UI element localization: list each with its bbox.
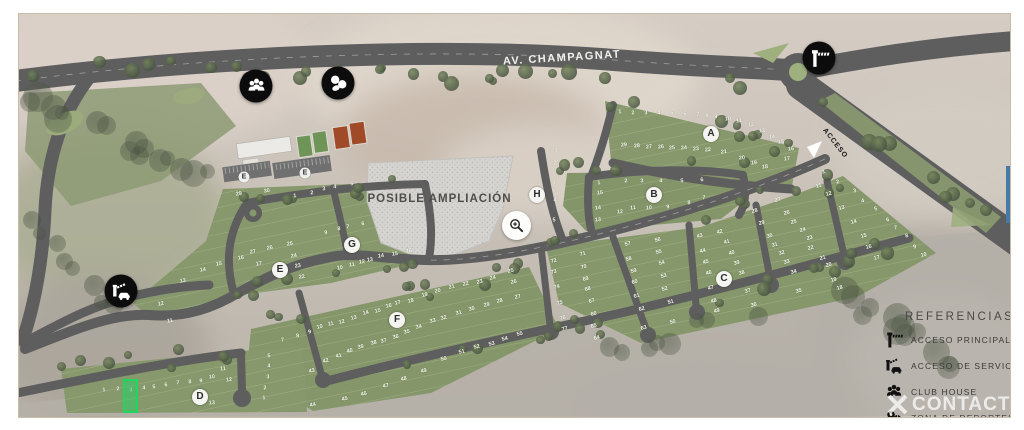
highlighted-lot[interactable] xyxy=(123,379,138,413)
tree xyxy=(231,61,241,71)
lot-number: 9 xyxy=(666,205,669,211)
legend-item-label: ACCESO PRINCIPAL xyxy=(911,335,1011,345)
lot-number: 16 xyxy=(788,147,794,153)
tree xyxy=(769,146,780,157)
tree xyxy=(166,56,176,66)
tree xyxy=(965,198,975,208)
tree xyxy=(75,355,86,366)
lot-number: 1 xyxy=(262,396,265,402)
tree xyxy=(599,72,610,83)
tree xyxy=(550,236,559,245)
tree xyxy=(248,290,259,301)
tree xyxy=(86,111,109,134)
lot-number: 18 xyxy=(762,165,768,171)
lot-number: 5 xyxy=(552,218,555,224)
lot-number: 10 xyxy=(725,117,731,123)
lot-number: 17 xyxy=(256,262,263,268)
lot-number: 10 xyxy=(209,375,215,381)
tree xyxy=(606,102,615,111)
tree xyxy=(980,204,992,216)
lot-number: 2 xyxy=(624,179,627,185)
tree xyxy=(20,92,39,111)
tree xyxy=(402,282,410,290)
tree xyxy=(57,362,66,371)
lot-number: 28 xyxy=(634,144,640,150)
section-badge-a: A xyxy=(703,126,719,142)
lot-number: 15 xyxy=(392,252,399,258)
lot-number: 2 xyxy=(310,191,314,197)
lot-number: 11 xyxy=(167,319,174,325)
lot-number: 11 xyxy=(220,367,226,373)
lot-number: 13 xyxy=(759,129,765,135)
tree xyxy=(687,156,697,166)
lot-number: 13 xyxy=(209,401,215,407)
tree xyxy=(65,261,80,276)
lot-number: 3 xyxy=(322,187,326,193)
tree xyxy=(49,235,66,252)
parking-marker: E xyxy=(300,168,311,179)
tree xyxy=(485,74,493,82)
zoom-in-button[interactable] xyxy=(502,211,531,240)
tree xyxy=(125,131,147,153)
lot-number: 15 xyxy=(597,191,603,197)
tree xyxy=(548,69,557,78)
lot-number: 9 xyxy=(324,231,328,237)
tree xyxy=(733,81,747,95)
tree xyxy=(725,73,735,83)
tree xyxy=(791,186,801,196)
legend-item-acceso-de-servicio: ACCESO DE SERVICIO xyxy=(885,357,1011,375)
legend-item-acceso-principal: ACCESO PRINCIPAL xyxy=(885,331,1011,349)
lot-number: 1 xyxy=(618,110,621,116)
tree xyxy=(444,76,459,91)
lot-number: 23 xyxy=(295,264,302,270)
tree xyxy=(399,262,409,272)
service-access-marker xyxy=(105,275,138,308)
lot-number: 8 xyxy=(687,201,690,207)
tree xyxy=(927,171,940,184)
lot-number: 3 xyxy=(266,375,269,381)
lot-number: 4 xyxy=(142,386,145,392)
lot-number: 11 xyxy=(328,322,335,329)
legend-title: REFERENCIAS xyxy=(905,311,1011,323)
tree xyxy=(559,159,571,171)
lot-number: 15 xyxy=(778,140,784,146)
tree xyxy=(233,291,241,299)
magnifier-icon xyxy=(508,217,525,234)
lot-number: 2 xyxy=(263,386,266,392)
tree xyxy=(939,191,951,203)
tree xyxy=(296,314,306,324)
tree xyxy=(252,276,263,287)
lot-number: 27 xyxy=(250,250,257,256)
lot-number: 8 xyxy=(188,380,191,386)
lot-number: 6 xyxy=(683,112,686,118)
lot-number: 6 xyxy=(700,178,703,184)
tree xyxy=(103,357,115,369)
tree xyxy=(124,351,132,359)
section-badge-d: D xyxy=(192,389,208,405)
lot-number: 19 xyxy=(751,161,757,167)
lot-number: 29 xyxy=(621,143,627,149)
lot-number: 7 xyxy=(696,113,699,119)
lot-number: 4 xyxy=(267,364,270,370)
tree xyxy=(55,106,69,120)
lot-number: 16 xyxy=(406,249,413,255)
tree xyxy=(734,131,745,142)
lot-number: 25 xyxy=(287,242,294,248)
barrier-icon xyxy=(809,48,829,68)
section-badge-e: E xyxy=(272,262,288,278)
barrier-car-icon xyxy=(885,357,903,375)
main-access-marker xyxy=(803,42,836,75)
tree xyxy=(205,62,217,74)
lot-number: 21 xyxy=(721,150,727,156)
tree xyxy=(256,194,265,203)
lot-number: 24 xyxy=(681,146,687,152)
lot-number: 11 xyxy=(349,263,355,269)
tree xyxy=(33,227,46,240)
tree xyxy=(600,337,620,357)
tree xyxy=(749,307,768,326)
tree xyxy=(757,282,771,296)
tree xyxy=(142,58,155,71)
lot-number: 12 xyxy=(359,260,366,266)
section-badge-h: H xyxy=(529,187,545,203)
tree xyxy=(420,279,430,289)
tree xyxy=(125,63,140,78)
tree xyxy=(846,248,857,259)
lot-number: 10 xyxy=(646,206,652,212)
tree xyxy=(407,259,418,270)
tree xyxy=(649,335,665,351)
masterplan-map: AV. CHAMPAGNAT ACCESO POSIBLE AMPLIACIÓN… xyxy=(18,13,1011,418)
lot-number: 7 xyxy=(176,381,179,387)
tree xyxy=(881,246,895,260)
lot-number: 2 xyxy=(631,111,634,117)
lot-number: 4 xyxy=(657,111,660,117)
section-badge-c: C xyxy=(716,271,732,287)
lot-number: 14 xyxy=(378,254,385,260)
lot-number: 26 xyxy=(267,246,274,252)
sports-icon xyxy=(328,73,348,93)
tree xyxy=(573,157,584,168)
lot-number: 4 xyxy=(553,198,556,204)
lot-number: 6 xyxy=(164,383,167,389)
lot-number: 24 xyxy=(291,254,298,260)
legend-item-label: ACCESO DE SERVICIO xyxy=(911,361,1011,371)
parking-marker: E xyxy=(239,172,250,183)
lot-number: 1 xyxy=(102,388,105,394)
lot-number: 3 xyxy=(640,179,643,185)
tree xyxy=(282,194,293,205)
lot-number: 8 xyxy=(705,114,708,120)
tree xyxy=(173,344,185,356)
lot-number: 9 xyxy=(714,115,717,121)
lot-number: 5 xyxy=(350,182,354,188)
tree xyxy=(536,336,545,345)
tree xyxy=(569,229,578,238)
tree xyxy=(84,275,105,296)
lot-number: 11 xyxy=(736,119,742,125)
lot-number: 1 xyxy=(597,181,600,187)
tree xyxy=(592,166,601,175)
lot-number: 5 xyxy=(670,111,673,117)
lot-number: 7 xyxy=(346,225,350,231)
lot-number: 11 xyxy=(630,206,636,212)
tree xyxy=(266,310,274,318)
tree xyxy=(575,323,585,333)
lot-number: 3 xyxy=(552,181,555,187)
lot-number: 12 xyxy=(226,378,232,384)
x-logo-icon xyxy=(887,394,908,415)
lot-number: 17 xyxy=(784,157,790,163)
lot-number: 13 xyxy=(180,279,187,285)
lot-number: 5 xyxy=(152,385,155,391)
lot-number: 12 xyxy=(617,210,623,216)
lot-number: 8 xyxy=(337,227,341,233)
lot-number: 22 xyxy=(705,148,711,154)
tree xyxy=(408,68,419,79)
lot-number: 1 xyxy=(293,194,297,200)
barrier-icon xyxy=(885,331,903,349)
tree xyxy=(218,351,229,362)
tree xyxy=(610,165,621,176)
lot-number: 25 xyxy=(669,146,675,152)
lot-number: 12 xyxy=(748,123,754,129)
masterplan-page: AV. CHAMPAGNAT ACCESO POSIBLE AMPLIACIÓN… xyxy=(0,0,1024,430)
lot-number: 15 xyxy=(216,262,223,268)
tree xyxy=(383,265,392,274)
contacto-watermark: CONTACTO xyxy=(887,394,1011,415)
tree xyxy=(388,175,396,183)
lot-number: 22 xyxy=(299,275,306,281)
lot-number: 27 xyxy=(646,145,652,151)
tree xyxy=(544,332,553,341)
tree xyxy=(403,360,412,369)
barrier-car-icon xyxy=(111,281,131,301)
watermark-text: CONTACTO xyxy=(912,395,1011,414)
sports-zone-marker xyxy=(322,67,355,100)
lot-number: 4 xyxy=(659,179,662,185)
section-badge-f: F xyxy=(389,312,405,328)
lot-number: 23 xyxy=(693,147,699,153)
lot-number: 4 xyxy=(333,185,337,191)
tree xyxy=(353,183,363,193)
lot-number: 1 xyxy=(554,148,557,154)
lot-number: 9 xyxy=(199,379,202,385)
tree xyxy=(818,97,828,107)
lot-number: 14 xyxy=(595,206,601,212)
lot-number: 13 xyxy=(595,218,601,224)
lot-number: 29 xyxy=(236,192,243,198)
club-house-marker xyxy=(240,70,273,103)
people-icon xyxy=(246,76,266,96)
tree xyxy=(93,56,106,69)
tree xyxy=(274,313,282,321)
lot-number: 10 xyxy=(337,266,344,272)
section-badge-b: B xyxy=(646,187,662,203)
tree xyxy=(756,186,764,194)
expansion-label: POSIBLE AMPLIACIÓN xyxy=(367,194,512,206)
lot-number: 5 xyxy=(267,354,270,360)
tree xyxy=(809,263,820,274)
lot-number: 14 xyxy=(769,135,775,141)
section-badge-g: G xyxy=(344,237,360,253)
lot-number: 2 xyxy=(553,161,556,167)
tree xyxy=(561,64,577,80)
lot-number: 26 xyxy=(658,145,664,151)
lot-number: 16 xyxy=(238,256,245,262)
lot-number: 30 xyxy=(264,189,271,195)
lot-number: 14 xyxy=(200,268,207,274)
scrollbar-thumb[interactable] xyxy=(1006,166,1010,223)
lot-number: 6 xyxy=(361,222,365,228)
tree xyxy=(167,364,176,373)
lot-number: 20 xyxy=(739,156,745,162)
lot-number: 2 xyxy=(116,387,119,393)
lot-number: 12 xyxy=(158,302,165,308)
lot-number: 5 xyxy=(680,179,683,185)
tree xyxy=(748,131,759,142)
tree xyxy=(492,263,501,272)
tree xyxy=(301,66,311,76)
tree xyxy=(735,196,746,207)
tree xyxy=(375,65,384,74)
tree xyxy=(701,215,711,225)
tree xyxy=(27,70,38,81)
lot-number: 3 xyxy=(644,111,647,117)
tree xyxy=(628,96,640,108)
lot-number: 13 xyxy=(367,258,374,264)
lot-number: 7 xyxy=(702,196,705,202)
